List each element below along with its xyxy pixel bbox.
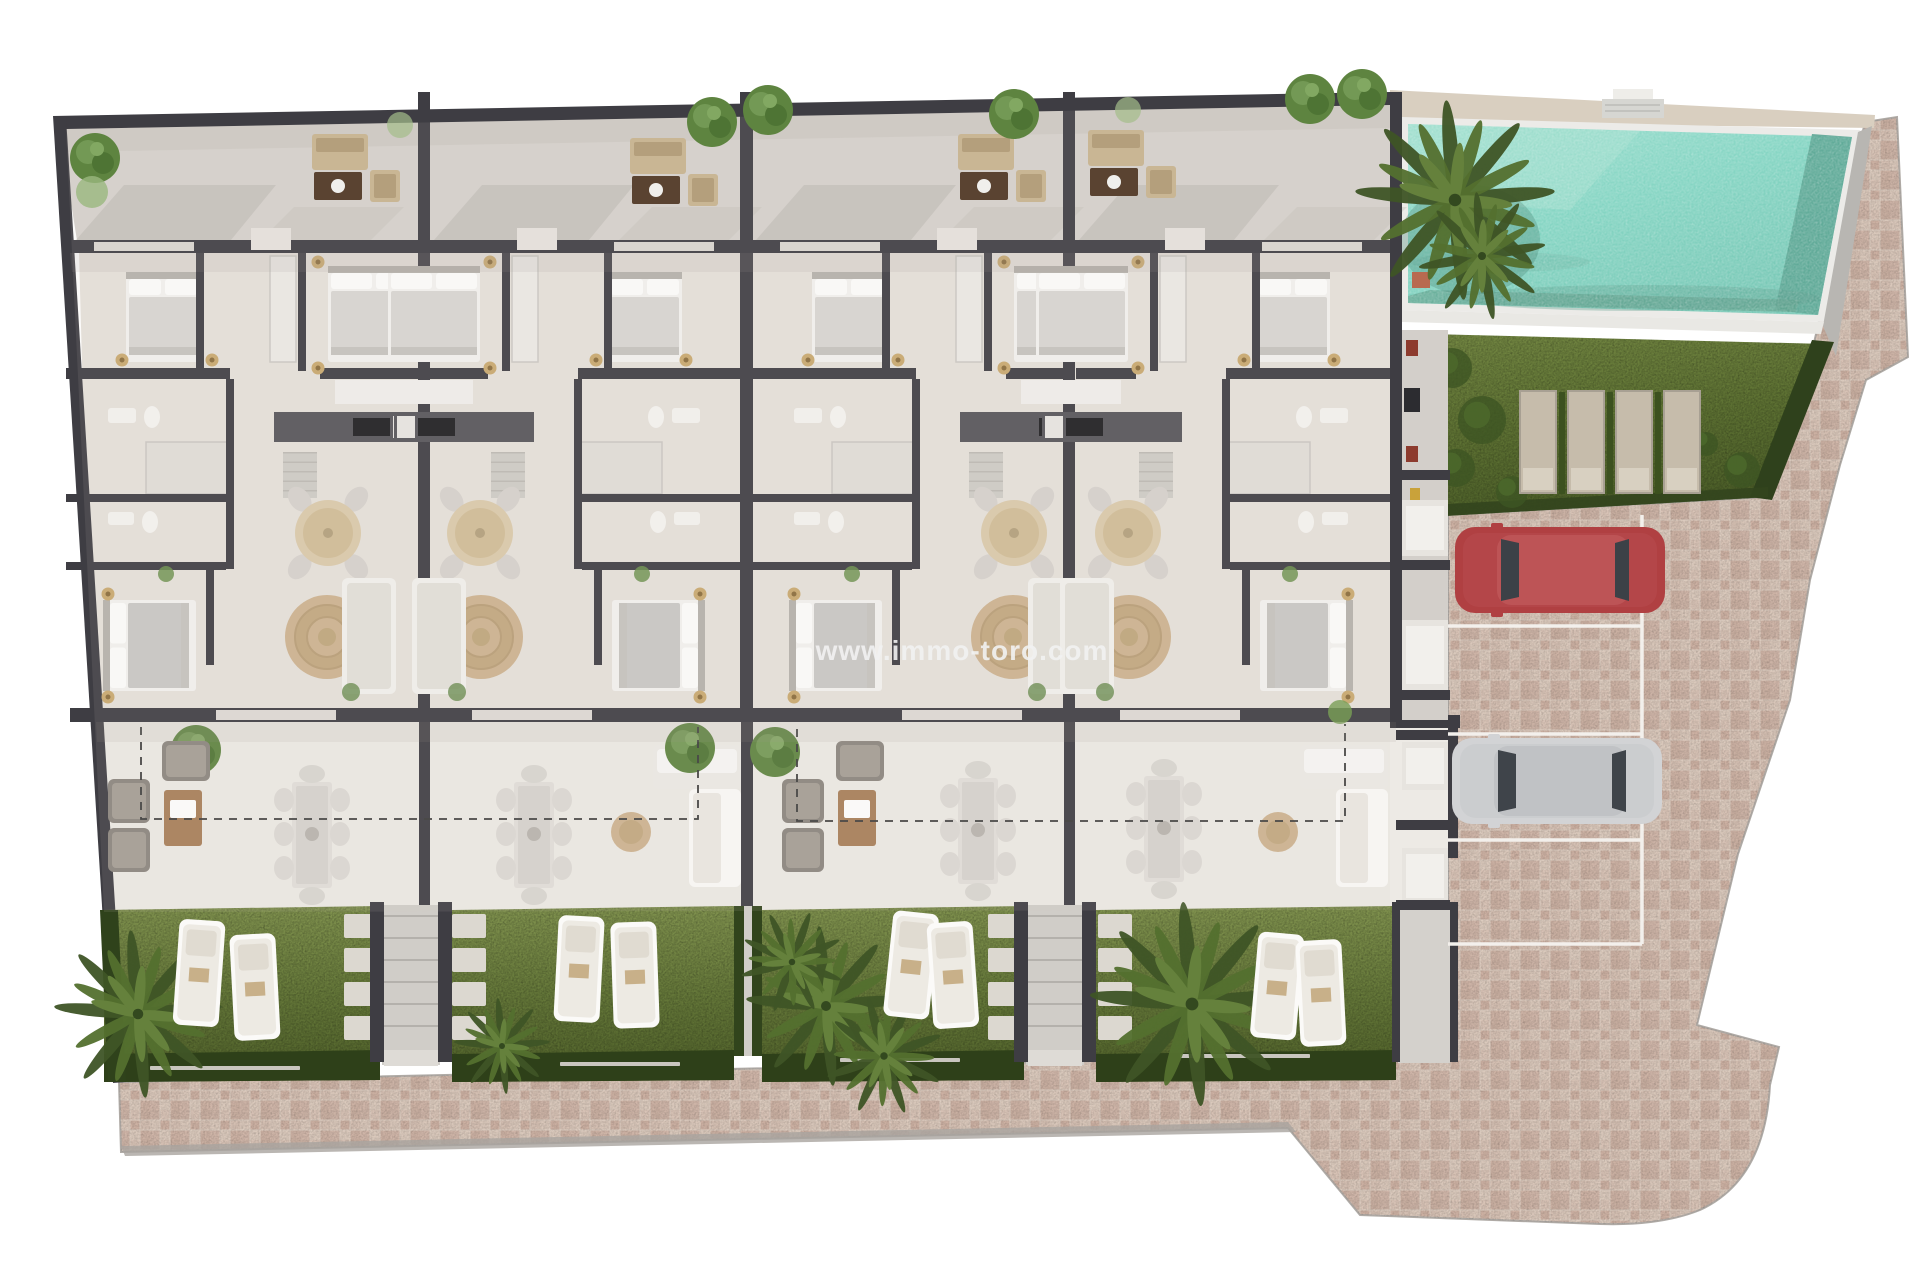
svg-text:www.immo-toro.com: www.immo-toro.com <box>815 635 1109 666</box>
